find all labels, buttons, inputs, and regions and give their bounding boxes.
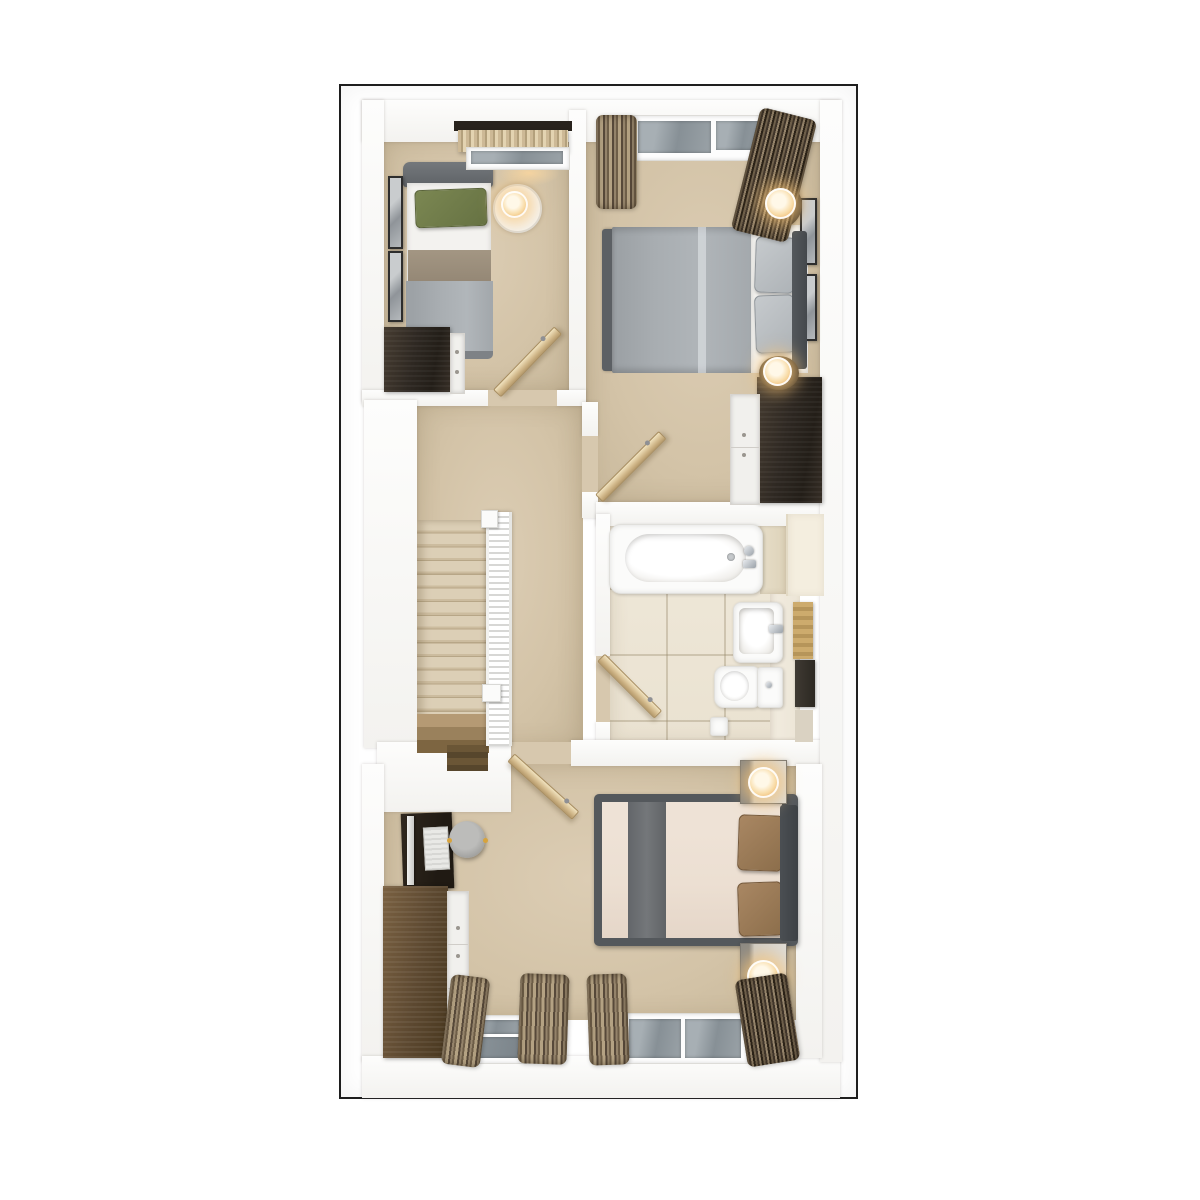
wall-left-upper xyxy=(362,100,384,402)
curtain-bottom-3 xyxy=(586,973,629,1065)
brown-pillow-2 xyxy=(737,881,784,937)
doorway-tr-bedroom xyxy=(582,436,598,492)
newel-post-top xyxy=(481,510,498,528)
window-glass-tr-left xyxy=(638,121,711,153)
table-lamp-tr-top xyxy=(765,188,796,219)
bathroom-shelf-tan xyxy=(793,602,813,659)
bath-tap-knob xyxy=(744,546,754,556)
stairwell-void xyxy=(447,745,488,771)
dresser-tl-front xyxy=(450,333,465,394)
dresser-bottom xyxy=(383,886,448,1058)
stair-step-dark2 xyxy=(417,727,489,740)
stool-accent-right xyxy=(483,838,488,843)
bed-runner-grey xyxy=(628,802,666,938)
wall-left-lower xyxy=(362,764,384,1062)
wall-between-top-bedrooms xyxy=(569,110,586,404)
double-bed-headboard-bottom xyxy=(780,805,798,941)
desk-stool xyxy=(449,821,485,858)
bath-side-tile-ledge xyxy=(760,516,786,594)
toilet-seat xyxy=(720,671,749,701)
wall-landing-tr-upper xyxy=(582,402,598,436)
newel-post-bottom xyxy=(482,684,501,702)
wardrobe-tr-front xyxy=(730,394,760,505)
bath-tap-spout xyxy=(743,560,756,568)
wall-bottom-bedroom-right xyxy=(796,764,822,1058)
monitor xyxy=(407,816,414,885)
table-lamp-tl xyxy=(501,191,528,218)
bathroom-cupboard-block xyxy=(786,514,824,596)
wall-art-tl-1 xyxy=(388,176,403,249)
brown-pillow-1 xyxy=(737,814,784,872)
green-pillow xyxy=(414,188,487,228)
table-lamp-bottom-1 xyxy=(748,767,779,798)
wall-art-tl-2 xyxy=(388,251,403,322)
pillow-tr-1 xyxy=(754,236,796,293)
curtain-bottom-2 xyxy=(517,973,569,1065)
dresser-tl xyxy=(384,327,450,392)
wall-bathroom-left-upper xyxy=(596,514,610,656)
bathroom-dark-cabinet xyxy=(795,660,815,707)
table-lamp-tr-bottom xyxy=(763,357,792,386)
double-bed-duvet-tr xyxy=(612,227,755,373)
pillow-tr-2 xyxy=(754,294,796,353)
keyboard xyxy=(423,826,450,870)
stool-accent-left xyxy=(447,838,452,843)
window-bottom-right-pane-left xyxy=(629,1019,681,1058)
banister-railing xyxy=(486,512,512,746)
window-glass-tl xyxy=(471,151,563,164)
bathroom-low-unit xyxy=(795,710,813,742)
duvet-fold-crease-tr xyxy=(698,227,706,373)
basin-tap xyxy=(769,625,783,633)
window-bottom-right-pane-right xyxy=(685,1019,741,1058)
wardrobe-tr xyxy=(757,377,822,503)
wall-stairwell-left xyxy=(364,400,417,748)
floorplan-canvas xyxy=(0,0,1200,1200)
double-bed-headboard-tr xyxy=(792,231,807,369)
toilet-flush-button xyxy=(766,682,772,688)
toilet-roll-holder xyxy=(710,717,728,736)
bathtub-drain xyxy=(727,553,735,561)
curtain-tr-left xyxy=(596,115,637,209)
taupe-bed-runner xyxy=(408,250,491,283)
stair-step-dark1 xyxy=(417,714,489,727)
